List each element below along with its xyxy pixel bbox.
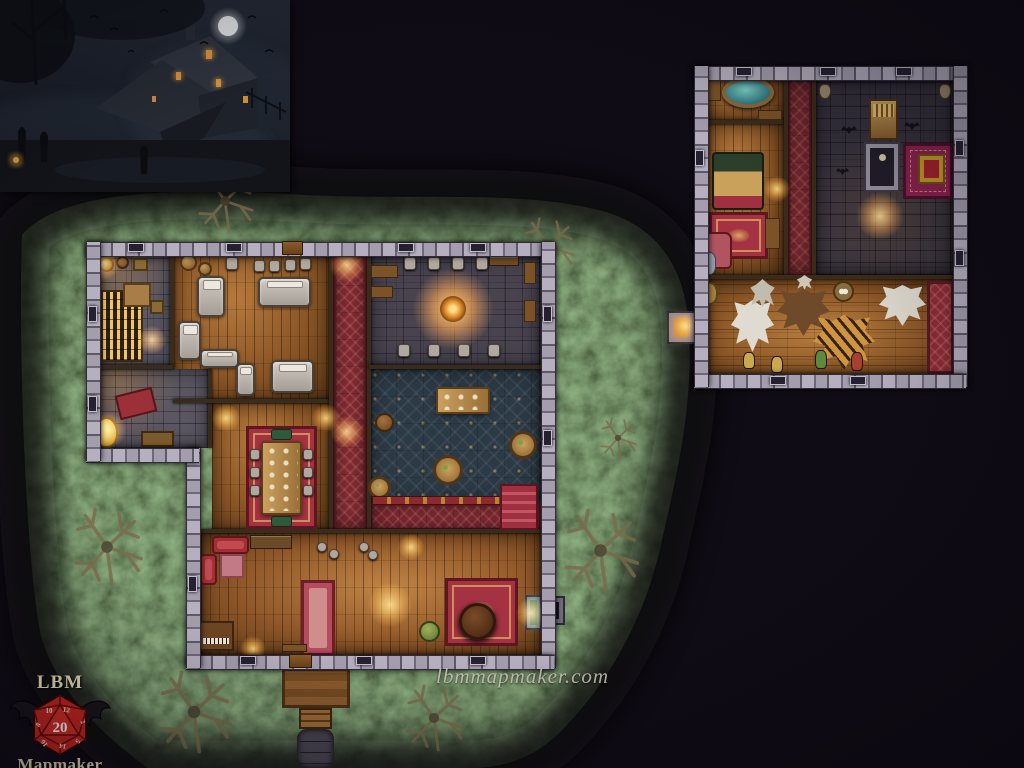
furniture-piano [198, 621, 234, 651]
furniture-organ [869, 99, 898, 140]
window [770, 376, 786, 385]
furniture-cab [765, 218, 780, 249]
furniture-chair [428, 344, 440, 357]
outer-wall [86, 448, 199, 463]
d20-dice-icon: 20 10122814165 [8, 692, 112, 758]
furniture-chair [476, 257, 488, 270]
window [850, 376, 866, 385]
interior-wall [329, 255, 333, 531]
furniture-throne [918, 154, 945, 184]
furniture-chair [458, 344, 470, 357]
furniture-figure [771, 356, 783, 373]
furniture-sign [250, 535, 292, 549]
furniture-bench [282, 644, 307, 652]
window [470, 243, 486, 252]
furniture-carpet-v [927, 281, 954, 374]
interior-wall [812, 78, 816, 275]
furniture-tub [722, 77, 774, 108]
interior-wall [208, 369, 212, 448]
furniture-figure-green [815, 350, 827, 369]
window [88, 306, 97, 322]
furniture-bed [178, 321, 201, 360]
furniture-coffin [864, 142, 900, 192]
furniture-chair [250, 449, 260, 460]
window [240, 656, 256, 665]
furniture-bed [236, 363, 255, 396]
window [356, 656, 372, 665]
furniture-table-long [261, 441, 302, 515]
furniture-keg-green [419, 621, 440, 642]
furniture-chair [404, 257, 416, 270]
furniture-cauldron [459, 603, 496, 640]
furniture-cab [371, 286, 393, 298]
furniture-table-round [198, 262, 212, 276]
furniture-sign [489, 256, 519, 266]
interior-wall [99, 365, 173, 369]
interior-wall [706, 275, 954, 279]
furniture-sofa-v [200, 554, 217, 585]
window [543, 306, 552, 322]
furniture-barrel [116, 256, 129, 269]
furniture-chair [285, 259, 296, 271]
door [282, 241, 303, 255]
furniture-stool [329, 549, 339, 559]
window [188, 576, 197, 592]
d20-die: 20 10122814165 [34, 695, 87, 755]
window [955, 140, 964, 156]
furniture-sideboard [371, 265, 398, 278]
furniture-chair [303, 449, 313, 460]
outer-wall [186, 448, 201, 668]
furniture-endchair [271, 429, 292, 440]
room-corridor-2 [787, 78, 812, 275]
outer-wall [86, 242, 101, 461]
window [820, 67, 836, 76]
window [88, 396, 97, 412]
furniture-chair [226, 257, 238, 270]
furniture-stool [317, 542, 327, 552]
window [695, 150, 704, 166]
furniture-chair [300, 258, 311, 270]
furniture-bed [258, 277, 311, 307]
furniture-chair [250, 485, 260, 496]
window [543, 430, 552, 446]
furniture-platter [433, 455, 463, 485]
furniture-brazier [440, 296, 466, 322]
furniture-cab [708, 80, 721, 101]
furniture-shelf [758, 110, 782, 120]
outer-wall [694, 66, 709, 387]
interior-wall [784, 78, 788, 275]
watermark: lbmmapmaker.com [436, 664, 609, 689]
haunted-house-inset [0, 0, 290, 192]
furniture-chair [254, 260, 265, 272]
outer-wall [694, 374, 966, 389]
furniture-chair [250, 467, 260, 478]
outer-wall [953, 66, 968, 387]
furniture-sofa-h [212, 536, 249, 554]
lbm-logo: LBM 20 10122814165 Mapmaker [8, 672, 112, 768]
furniture-figure-red [851, 352, 863, 371]
furniture-chair [303, 467, 313, 478]
furniture-bed-canopy [712, 152, 764, 210]
furniture-chair [452, 257, 464, 270]
interior-wall [706, 120, 784, 124]
furniture-keg [375, 413, 394, 432]
furniture-endchair [271, 516, 292, 527]
furniture-cab [524, 300, 536, 322]
furniture-fireplace [525, 595, 542, 630]
furniture-cab [524, 262, 536, 284]
window [128, 243, 144, 252]
furniture-crate [150, 300, 164, 314]
furniture-figure [743, 352, 755, 369]
interior-wall [369, 365, 541, 369]
logo-subtitle: Mapmaker [8, 755, 112, 768]
furniture-bed [271, 360, 314, 393]
interior-wall [201, 529, 541, 533]
furniture-stool [359, 542, 369, 552]
furniture-steps [299, 708, 332, 729]
furniture-painting [141, 431, 174, 447]
window [398, 243, 414, 252]
window [736, 67, 752, 76]
svg-text:20: 20 [53, 720, 68, 736]
furniture-bed [197, 276, 225, 317]
furniture-stairs [500, 484, 538, 530]
furniture-chair [428, 257, 440, 270]
furniture-path [297, 729, 334, 768]
furniture-ttable [123, 283, 151, 307]
furniture-chair [303, 485, 313, 496]
furniture-chair [269, 260, 280, 272]
interior-wall [173, 399, 331, 403]
window [896, 67, 912, 76]
battle-map-scene: lbmmapmaker.com LBM 20 10122814165 Mapma… [0, 0, 1024, 768]
furniture-rug-small [220, 554, 244, 578]
furniture-pedestal [833, 281, 854, 302]
furniture-urn [939, 84, 951, 99]
furniture-table-long [436, 387, 490, 414]
furniture-bed [200, 349, 239, 368]
furniture-urn [819, 84, 831, 99]
furniture-chair [398, 344, 410, 357]
furniture-hearth [667, 311, 696, 344]
logo-title: LBM [8, 672, 112, 694]
furniture-crate [133, 258, 148, 271]
interior-wall [170, 255, 174, 368]
room-corridor [333, 255, 367, 531]
die-number: 10 [46, 707, 54, 715]
furniture-barrel [99, 257, 114, 272]
furniture-chair [488, 344, 500, 357]
furniture-porch [282, 668, 350, 708]
furniture-platter [509, 431, 537, 459]
door [289, 654, 312, 668]
furniture-stool [368, 550, 378, 560]
window [955, 250, 964, 266]
window [226, 243, 242, 252]
